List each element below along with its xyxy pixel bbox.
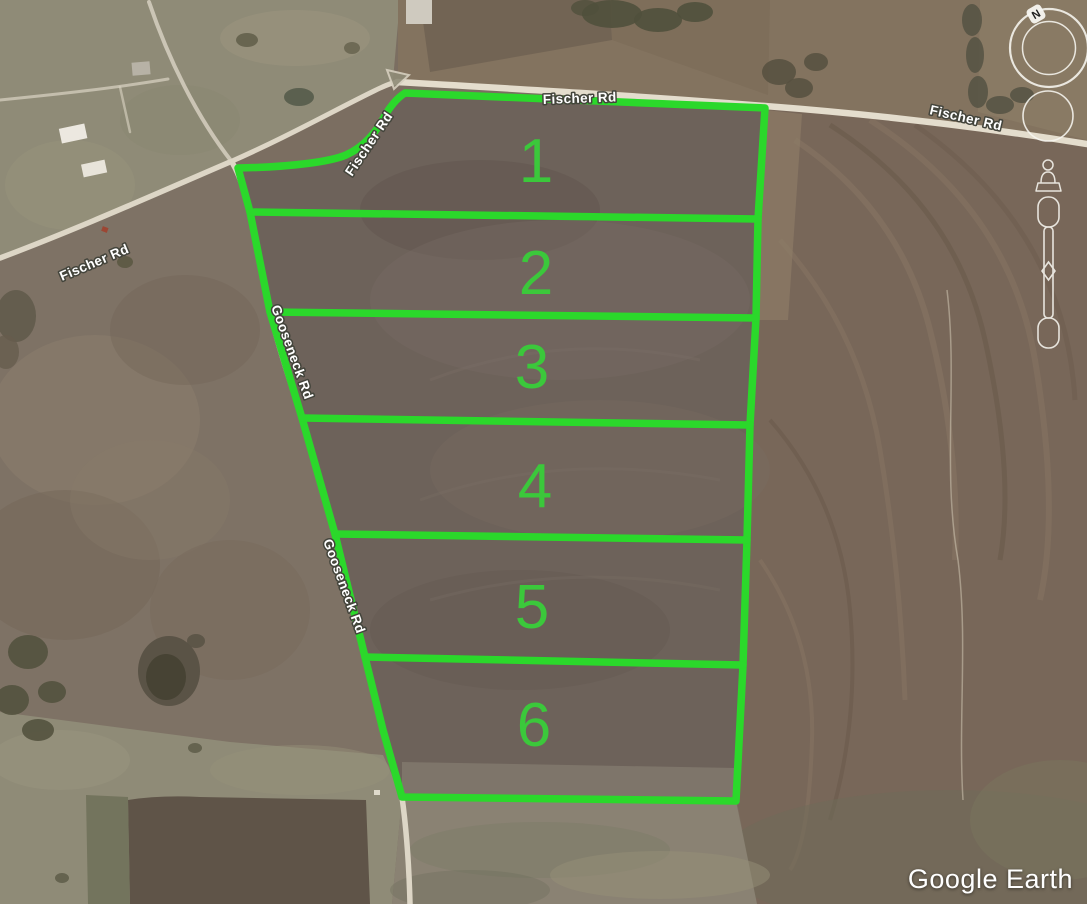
tree-clump [966,37,984,73]
farm-building [406,0,432,24]
tree-clump [968,76,988,108]
field-patch [70,440,230,560]
tree-clump [986,96,1014,114]
pond [187,634,205,648]
field-patch [110,275,260,385]
lot-number-3: 3 [515,333,549,402]
tree-clump [582,0,642,28]
lot-number-5: 5 [515,573,549,642]
plowed-field-dark [128,796,370,904]
farm-building [374,790,380,795]
lot-number-4: 4 [518,452,552,521]
tree-clump [55,873,69,883]
pond [146,654,186,700]
pond [284,88,314,106]
lot-number-2: 2 [519,239,553,308]
tree-clump [8,635,48,669]
field-patch [210,745,390,795]
lot-number-6: 6 [517,691,551,760]
map-canvas[interactable]: Fischer Rd Fischer Rd Fischer Rd Fischer… [0,0,1087,904]
field-strip [86,795,130,904]
tree-clump [634,8,682,32]
lot-number-1: 1 [519,127,553,196]
tree-clump [236,33,258,47]
google-earth-watermark: Google Earth [908,864,1073,895]
tree-clump [1010,87,1034,103]
tree-clump [677,2,713,22]
tree-clump [38,681,66,703]
road-label-fischer-top: Fischer Rd [543,89,617,107]
field-patch [550,851,770,899]
tree-clump [344,42,360,54]
tree-clump [188,743,202,753]
field-patch [120,85,240,155]
tree-clump [804,53,828,71]
tree-clump [22,719,54,741]
tree-clump [785,78,813,98]
tree-clump [962,4,982,36]
field-patch [370,220,750,380]
farm-building [132,61,151,76]
google-earth-viewport[interactable]: Fischer Rd Fischer Rd Fischer Rd Fischer… [0,0,1087,904]
